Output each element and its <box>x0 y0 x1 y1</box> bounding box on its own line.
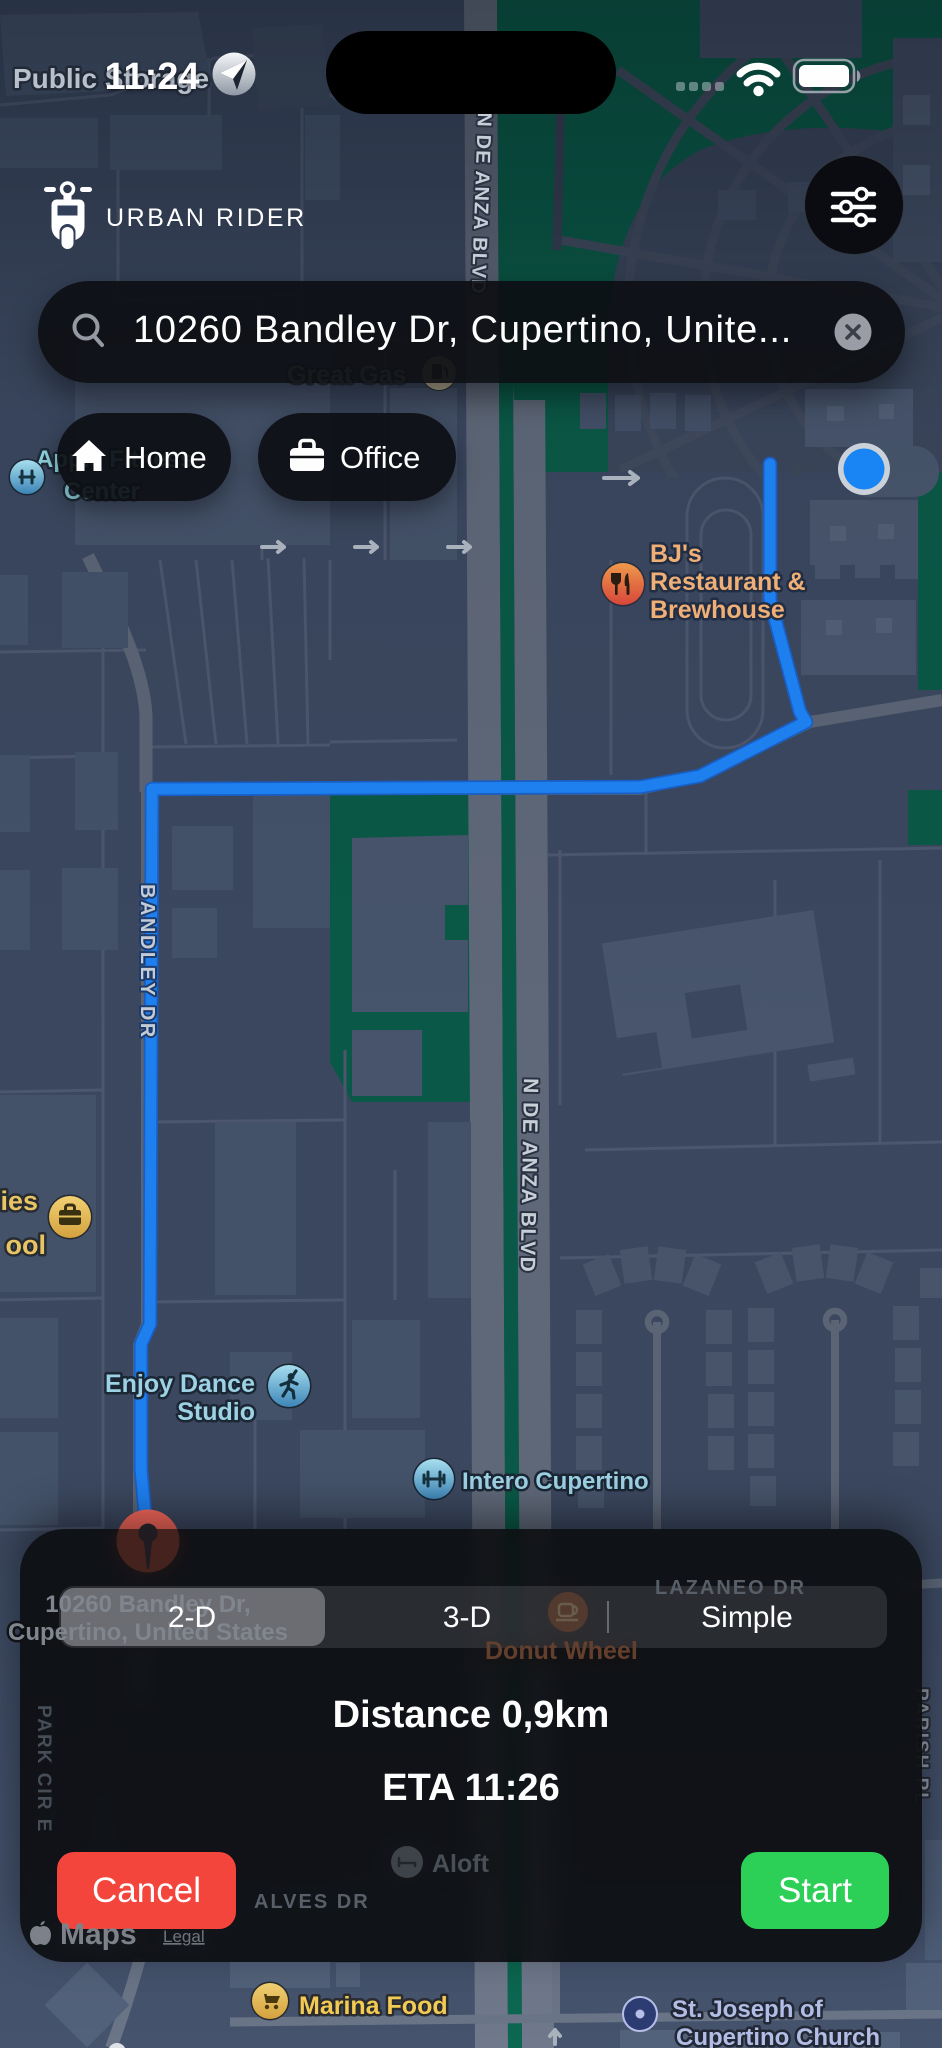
svg-text:2-D: 2-D <box>168 1601 216 1634</box>
svg-text:3-D: 3-D <box>443 1601 491 1634</box>
svg-text:Donut Wheel: Donut Wheel <box>485 1637 638 1665</box>
svg-text:Cupertino Church: Cupertino Church <box>676 2024 880 2048</box>
svg-text:Studio: Studio <box>177 1398 255 1426</box>
svg-text:Maps: Maps <box>60 1918 137 1951</box>
svg-text:10260 Bandley Dr,: 10260 Bandley Dr, <box>45 1591 250 1618</box>
svg-text:Cupertino, United States: Cupertino, United States <box>8 1619 288 1646</box>
svg-text:LAZANEO DR: LAZANEO DR <box>655 1577 806 1599</box>
svg-text:N DE ANZA BLVD: N DE ANZA BLVD <box>516 1078 542 1274</box>
svg-text:BANDLEY DR: BANDLEY DR <box>136 884 158 1040</box>
svg-text:Simple: Simple <box>701 1601 793 1634</box>
svg-text:Intero Cupertino: Intero Cupertino <box>462 1468 649 1495</box>
svg-text:Brewhouse: Brewhouse <box>650 596 785 624</box>
svg-text:lies: lies <box>0 1186 38 1216</box>
svg-text:Marina Food: Marina Food <box>299 1992 448 2020</box>
svg-text:Restaurant &: Restaurant & <box>650 568 806 596</box>
svg-text:St. Joseph of: St. Joseph of <box>672 1996 824 2023</box>
svg-text:ool: ool <box>6 1230 47 1260</box>
svg-text:BJ's: BJ's <box>650 540 702 568</box>
svg-text:PARK CIR E: PARK CIR E <box>33 1705 54 1833</box>
svg-text:Aloft: Aloft <box>432 1850 490 1878</box>
svg-text:Legal: Legal <box>163 1927 205 1946</box>
svg-text:Enjoy Dance: Enjoy Dance <box>105 1370 255 1398</box>
svg-text:ALVES DR: ALVES DR <box>254 1891 370 1913</box>
